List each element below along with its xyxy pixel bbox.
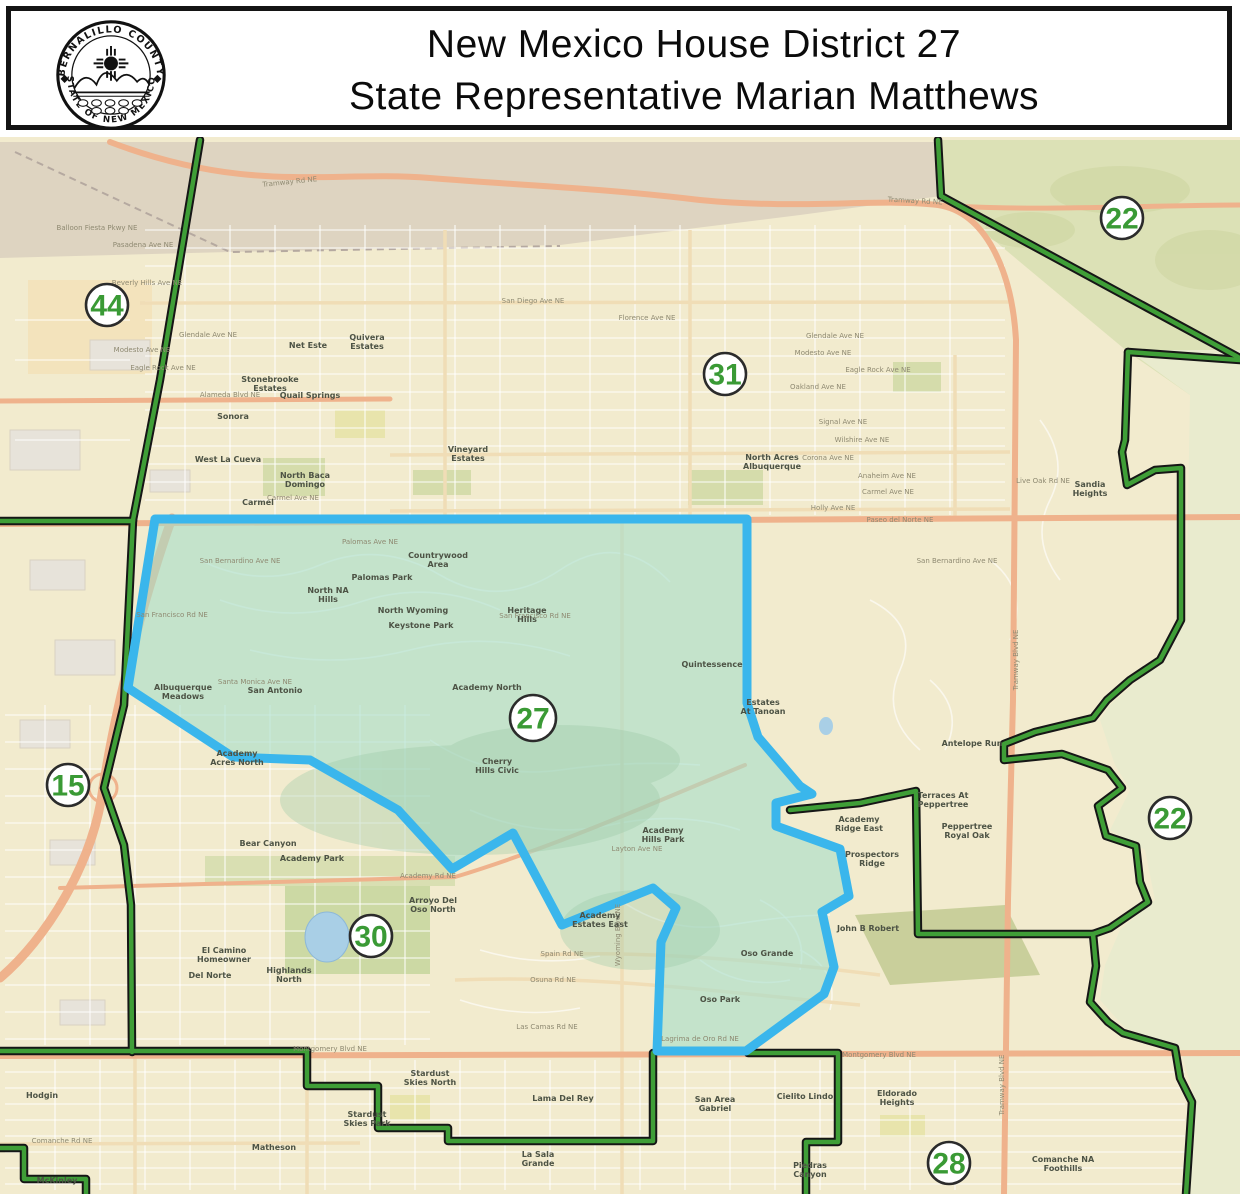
neighborhood-label: QuiveraEstates [349,333,384,351]
street-label: Signal Ave NE [819,418,867,426]
header: BERNALILLO COUNTY STATE OF NEW MEXICO [6,6,1232,130]
neighborhood-label: Bear Canyon [239,839,296,848]
street-label: Palomas Ave NE [342,538,398,546]
neighborhood-label: Del Norte [189,971,233,980]
district-number: 15 [51,770,84,803]
street-label: Beverly Hills Ave NE [112,279,182,287]
neighborhood-label: StardustSkies Park [343,1110,391,1128]
district-number: 22 [1105,203,1138,236]
street-label: Osuna Rd NE [530,976,576,984]
street-label: Montgomery Blvd NE [293,1045,367,1053]
neighborhood-label: Antelope Run [942,739,1003,748]
neighborhood-label: Quail Springs [280,391,341,400]
street-label: Tramway Blvd NE [998,1055,1006,1117]
district-label-27: 27 [510,695,556,741]
district-number: 44 [90,290,124,323]
street-label: Anaheim Ave NE [858,472,916,480]
neighborhood-label: North Wyoming [378,606,449,615]
street-label: San Bernardino Ave NE [200,557,281,565]
neighborhood-label: Academy North [452,683,522,692]
neighborhood-label: North BacaDomingo [280,471,330,489]
street-label: Paseo del Norte NE [867,516,934,524]
street-label: San Francisco Rd NE [136,611,208,619]
street-label: Eagle Rock Ave NE [130,364,195,372]
neighborhood-label: Net Este [289,341,328,350]
neighborhood-label: El CaminoHomeowner [197,946,251,964]
district-number: 28 [932,1148,965,1181]
district-number: 30 [354,921,387,954]
page-title: New Mexico House District 27 [161,19,1227,71]
district-label-22: 22 [1101,197,1143,239]
street-label: Montgomery Blvd NE [842,1051,916,1059]
neighborhood-label: Quintessence [682,660,744,669]
district-label-30: 30 [350,915,392,957]
neighborhood-label: Arroyo DelOso North [409,896,457,914]
street-label: Carmel Ave NE [267,494,319,502]
neighborhood-label: La SalaGrande [522,1150,555,1168]
neighborhood-label: North AcresAlbuquerque [743,453,802,471]
district-label-44: 44 [86,284,128,326]
district-number: 31 [708,359,741,392]
neighborhood-label: Oso Park [700,995,741,1004]
neighborhood-label: AcademyEstates East [572,911,628,929]
neighborhood-label: Academy Park [280,854,345,863]
street-label: Layton Ave NE [612,845,663,853]
neighborhood-label: AcademyAcres North [210,749,264,767]
street-label: Tramway Blvd NE [1012,630,1020,692]
neighborhood-label: McKinley [37,1176,79,1185]
district-label-28: 28 [928,1142,970,1184]
neighborhood-label: San AreaGabriel [695,1095,736,1113]
arroyo-del-oso-pond [305,912,349,962]
street-label: Glendale Ave NE [179,331,237,339]
neighborhood-label: Matheson [252,1143,297,1152]
street-label: Glendale Ave NE [806,332,864,340]
neighborhood-label: Carmel [242,498,274,507]
neighborhood-label: PiedrasCanyon [793,1161,827,1179]
district-map: Tramway Rd NETramway Rd NEBalloon Fiesta… [0,137,1240,1194]
neighborhood-label: Palomas Park [352,573,414,582]
district-number: 22 [1153,803,1186,836]
neighborhood-label: PeppertreeRoyal Oak [942,822,993,840]
street-label: Florence Ave NE [619,314,676,322]
street-label: San Bernardino Ave NE [917,557,998,565]
neighborhood-label: San Antonio [248,686,303,695]
neighborhood-label: Terraces AtPeppertree [918,791,969,809]
map-page: BERNALILLO COUNTY STATE OF NEW MEXICO [0,0,1240,1194]
neighborhood-label: Keystone Park [389,621,455,630]
header-titles: New Mexico House District 27 State Repre… [11,19,1227,123]
street-label: Comanche Rd NE [32,1137,93,1145]
district-number: 27 [516,703,549,736]
street-label: Pasadena Ave NE [113,241,174,249]
neighborhood-label: AcademyRidge East [835,815,883,833]
street-label: San Diego Ave NE [502,297,565,305]
street-label: Las Camas Rd NE [516,1023,577,1031]
district-label-22: 22 [1149,797,1191,839]
neighborhood-label: John B Robert [836,924,899,933]
street-label: Modesto Ave NE [795,349,852,357]
street-label: Live Oak Rd NE [1016,477,1070,485]
street-label: Wilshire Ave NE [835,436,890,444]
street-label: Corona Ave NE [802,454,854,462]
street-label: Holly Ave NE [811,504,856,512]
page-subtitle: State Representative Marian Matthews [161,71,1227,123]
neighborhood-label: EstatesAt Tanoan [741,698,786,716]
street-label: Eagle Rock Ave NE [845,366,910,374]
district-label-15: 15 [47,764,89,806]
small-pond [819,717,833,735]
tramway-rd-east [938,205,1240,208]
neighborhood-label: SandiaHeights [1073,480,1108,498]
neighborhood-label: Hodgin [26,1091,58,1100]
map-canvas: Tramway Rd NETramway Rd NEBalloon Fiesta… [0,137,1240,1194]
street-label: Oakland Ave NE [790,383,846,391]
street-label: Santa Monica Ave NE [218,678,292,686]
neighborhood-label: Sonora [217,412,249,421]
neighborhood-label: StardustSkies North [404,1069,457,1087]
district-label-31: 31 [704,353,746,395]
street-label: Balloon Fiesta Pkwy NE [57,224,138,232]
neighborhood-label: West La Cueva [195,455,261,464]
street-label: Spain Rd NE [541,950,584,958]
neighborhood-label: Lama Del Rey [532,1094,594,1103]
neighborhood-label: AcademyHills Park [642,826,685,844]
neighborhood-label: EldoradoHeights [877,1089,918,1107]
street-label: Modesto Ave NE [114,346,171,354]
street-label: Carmel Ave NE [862,488,914,496]
street-label: Academy Rd NE [400,872,456,880]
neighborhood-label: Cielito Lindo [777,1092,834,1101]
neighborhood-label: AlbuquerqueMeadows [154,683,213,701]
street-label: Alameda Blvd NE [200,391,260,399]
street-label: Lagrima de Oro Rd NE [661,1035,739,1043]
neighborhood-label: VineyardEstates [448,445,488,463]
neighborhood-label: Oso Grande [741,949,794,958]
